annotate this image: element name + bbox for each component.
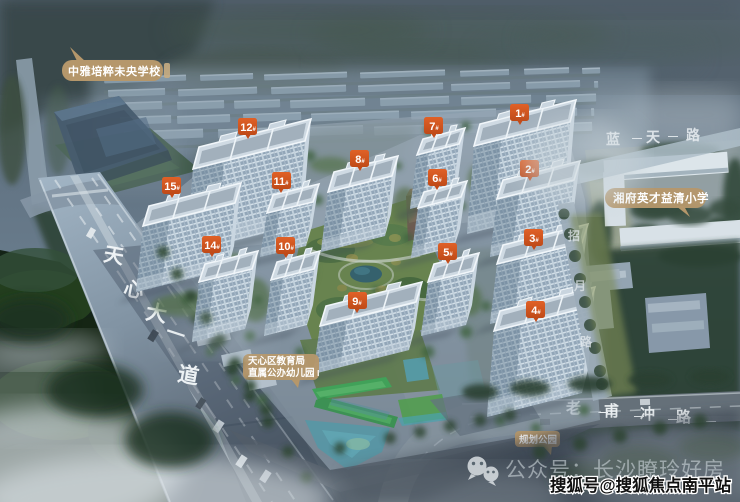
svg-text:冲: 冲 — [640, 405, 655, 423]
svg-text:中雅培粹未央学校: 中雅培粹未央学校 — [68, 64, 161, 78]
svg-text:甫: 甫 — [604, 402, 619, 420]
svg-text:湘府英才益清小学: 湘府英才益清小学 — [613, 191, 709, 205]
svg-text:天心区教育局: 天心区教育局 — [248, 355, 305, 367]
svg-text:直属公办幼儿园 I: 直属公办幼儿园 I — [248, 367, 319, 379]
svg-text:搜狐号@搜狐焦点南平站: 搜狐号@搜狐焦点南平站 — [550, 475, 732, 495]
svg-text:道: 道 — [176, 362, 201, 389]
svg-text:月: 月 — [573, 279, 586, 293]
svg-text:招: 招 — [568, 228, 580, 243]
svg-text:路: 路 — [580, 334, 593, 349]
